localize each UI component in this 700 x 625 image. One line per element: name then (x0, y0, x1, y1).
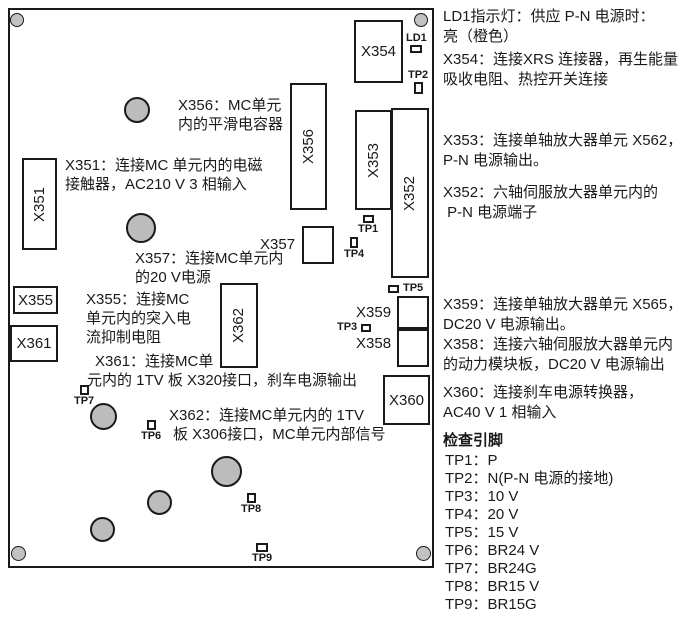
testpoint-tp8-pad (247, 493, 256, 503)
board-note-x355: X355：连接MC 单元内的突入电 流抑制电阻 (86, 290, 191, 347)
connector-x355: X355 (13, 286, 58, 314)
testpoint-tp9-pad (256, 543, 268, 552)
legend-note-x353-line-1: X353：连接单轴放大器单元 X562， (443, 131, 699, 151)
checkpin-tp2: TP2：N(P-N 电源的接地) (445, 470, 613, 488)
board-note-x357: X357：连接MC单元内 的20 V电源 (135, 249, 283, 287)
connector-x356-label: X356 (300, 129, 317, 164)
checkpin-tp7: TP7：BR24G (445, 560, 613, 578)
mounting-hole-bottom-left (11, 546, 26, 561)
testpoint-tp2-label: TP2 (408, 70, 428, 81)
legend-note-x352: X352：六轴伺服放大器单元内的 P-N 电源端子 (443, 183, 699, 223)
board-note-x361-line-1: X361：连接MC单 (87, 352, 357, 371)
board-note-x356-line-1: X356：MC单元 (178, 96, 283, 115)
testpoint-tp8: TP8 (241, 493, 261, 515)
legend-note-x360: X360：连接刹车电源转换器， AC40 V 1 相输入 (443, 383, 699, 423)
connector-x351-label: X351 (31, 186, 48, 221)
testpoint-tp1-label: TP1 (358, 224, 378, 235)
connector-x351: X351 (22, 158, 57, 250)
mounting-hole-bottom-right (416, 546, 431, 561)
checkpin-tp9: TP9：BR15G (445, 596, 613, 614)
checkpin-tp5: TP5：15 V (445, 524, 613, 542)
board-note-x356-line-2: 内的平滑电容器 (178, 115, 283, 134)
legend-note-ld1-line-2: 亮（橙色） (443, 27, 699, 47)
board-note-x361: X361：连接MC单 元内的 1TV 板 X320接口，刹车电源输出 (87, 352, 357, 390)
legend-note-x358-line-1: X358：连接六轴伺服放大器单元内 (443, 335, 699, 355)
connector-x361: X361 (10, 325, 58, 362)
testpoint-tp5-label: TP5 (403, 283, 423, 294)
testpoint-tp1-pad (363, 215, 374, 223)
legend-note-x352-line-2: P-N 电源端子 (443, 203, 699, 223)
board-note-x362: X362：连接MC单元内的 1TV 板 X306接口，MC单元内部信号 (169, 406, 386, 444)
board-note-x357-line-2: 的20 V电源 (135, 268, 283, 287)
testpoint-tp2: TP2 (408, 70, 428, 94)
legend-note-x354-line-2: 吸收电阻、热控开关连接 (443, 70, 699, 90)
legend-note-x352-line-1: X352：六轴伺服放大器单元内的 (443, 183, 699, 203)
connector-x356: X356 (290, 83, 327, 210)
connector-x358-label: X358 (356, 335, 391, 352)
legend-note-x353-line-2: P-N 电源输出。 (443, 151, 699, 171)
board-note-x357-line-1: X357：连接MC单元内 (135, 249, 283, 268)
capacitor-6 (90, 517, 115, 542)
connector-x358 (397, 329, 429, 367)
connector-x353-label: X353 (365, 142, 382, 177)
testpoint-tp1: TP1 (358, 215, 378, 235)
capacitor-1 (124, 97, 150, 123)
legend-note-x354-line-1: X354：连接XRS 连接器，再生能量 (443, 50, 699, 70)
board-note-x362-line-2: 板 X306接口，MC单元内部信号 (169, 425, 386, 444)
board-note-x351: X351：连接MC 单元内的电磁 接触器，AC210 V 3 相输入 (65, 156, 263, 194)
mounting-hole-top-left (10, 13, 24, 27)
connector-x360: X360 (383, 375, 430, 425)
mounting-hole-top-right (414, 13, 428, 27)
capacitor-4 (211, 456, 242, 487)
legend-note-x359: X359：连接单轴放大器单元 X565， DC20 V 电源输出。 (443, 295, 699, 335)
legend-note-x358-line-2: 的动力模块板，DC20 V 电源输出 (443, 355, 699, 375)
connector-x361-label: X361 (16, 335, 51, 352)
checkpin-list: TP1：P TP2：N(P-N 电源的接地) TP3：10 V TP4：20 V… (445, 452, 613, 614)
testpoint-tp2-pad (414, 82, 423, 94)
board-note-x362-line-1: X362：连接MC单元内的 1TV (169, 406, 386, 425)
legend-note-x359-line-1: X359：连接单轴放大器单元 X565， (443, 295, 699, 315)
checkpin-tp3: TP3：10 V (445, 488, 613, 506)
legend-note-x353: X353：连接单轴放大器单元 X562， P-N 电源输出。 (443, 131, 699, 171)
legend-note-ld1: LD1指示灯：供应 P-N 电源时： 亮（橙色） (443, 7, 699, 47)
connector-x359-label: X359 (356, 304, 391, 321)
mc-unit-connector-diagram: X354 X353 X352 X356 X351 X355 X361 X362 … (0, 0, 700, 625)
connector-x362-label: X362 (231, 308, 248, 343)
testpoint-tp4-pad (350, 237, 358, 248)
testpoint-tp5: TP5 (388, 283, 423, 294)
connector-x359 (397, 296, 429, 329)
led-ld1-lamp (410, 45, 422, 53)
testpoint-tp9: TP9 (252, 543, 272, 564)
capacitor-5 (147, 490, 172, 515)
testpoint-tp9-label: TP9 (252, 553, 272, 564)
testpoint-tp6-pad (147, 420, 156, 430)
testpoint-tp3-pad (361, 324, 371, 332)
led-ld1: LD1 (406, 33, 427, 53)
checkpin-tp4: TP4：20 V (445, 506, 613, 524)
connector-x353: X353 (355, 110, 392, 210)
testpoint-tp3: TP3 (337, 322, 371, 333)
checkpin-tp8: TP8：BR15 V (445, 578, 613, 596)
testpoint-tp4-label: TP4 (344, 249, 364, 260)
checkpin-header: 检查引脚 (443, 429, 503, 450)
board-note-x355-line-1: X355：连接MC (86, 290, 191, 309)
checkpin-tp1: TP1：P (445, 452, 613, 470)
connector-x354-label: X354 (361, 43, 396, 60)
board-note-x361-line-2: 元内的 1TV 板 X320接口，刹车电源输出 (87, 371, 357, 390)
capacitor-3 (90, 403, 117, 430)
board-note-x355-line-3: 流抑制电阻 (86, 328, 191, 347)
testpoint-tp3-label: TP3 (337, 322, 357, 333)
connector-x352-label: X352 (402, 175, 419, 210)
connector-x357 (302, 226, 334, 264)
legend-note-x359-line-2: DC20 V 电源输出。 (443, 315, 699, 335)
testpoint-tp6: TP6 (141, 420, 161, 442)
testpoint-tp5-pad (388, 285, 399, 293)
legend-note-ld1-line-1: LD1指示灯：供应 P-N 电源时： (443, 7, 699, 27)
connector-x354: X354 (354, 20, 403, 83)
connector-x355-label: X355 (18, 292, 53, 309)
legend-note-x354: X354：连接XRS 连接器，再生能量 吸收电阻、热控开关连接 (443, 50, 699, 90)
legend-note-x360-line-2: AC40 V 1 相输入 (443, 403, 699, 423)
testpoint-tp4: TP4 (344, 237, 364, 260)
testpoint-tp7-label: TP7 (74, 396, 94, 407)
connector-x352: X352 (391, 108, 429, 278)
board-note-x351-line-1: X351：连接MC 单元内的电磁 (65, 156, 263, 175)
led-ld1-label: LD1 (406, 33, 427, 44)
testpoint-tp6-label: TP6 (141, 431, 161, 442)
board-note-x356: X356：MC单元 内的平滑电容器 (178, 96, 283, 134)
board-note-x355-line-2: 单元内的突入电 (86, 309, 191, 328)
testpoint-tp8-label: TP8 (241, 504, 261, 515)
connector-x360-label: X360 (389, 392, 424, 409)
board-note-x351-line-2: 接触器，AC210 V 3 相输入 (65, 175, 263, 194)
capacitor-2 (126, 213, 156, 243)
checkpin-tp6: TP6：BR24 V (445, 542, 613, 560)
legend-note-x358: X358：连接六轴伺服放大器单元内 的动力模块板，DC20 V 电源输出 (443, 335, 699, 375)
legend-note-x360-line-1: X360：连接刹车电源转换器， (443, 383, 699, 403)
